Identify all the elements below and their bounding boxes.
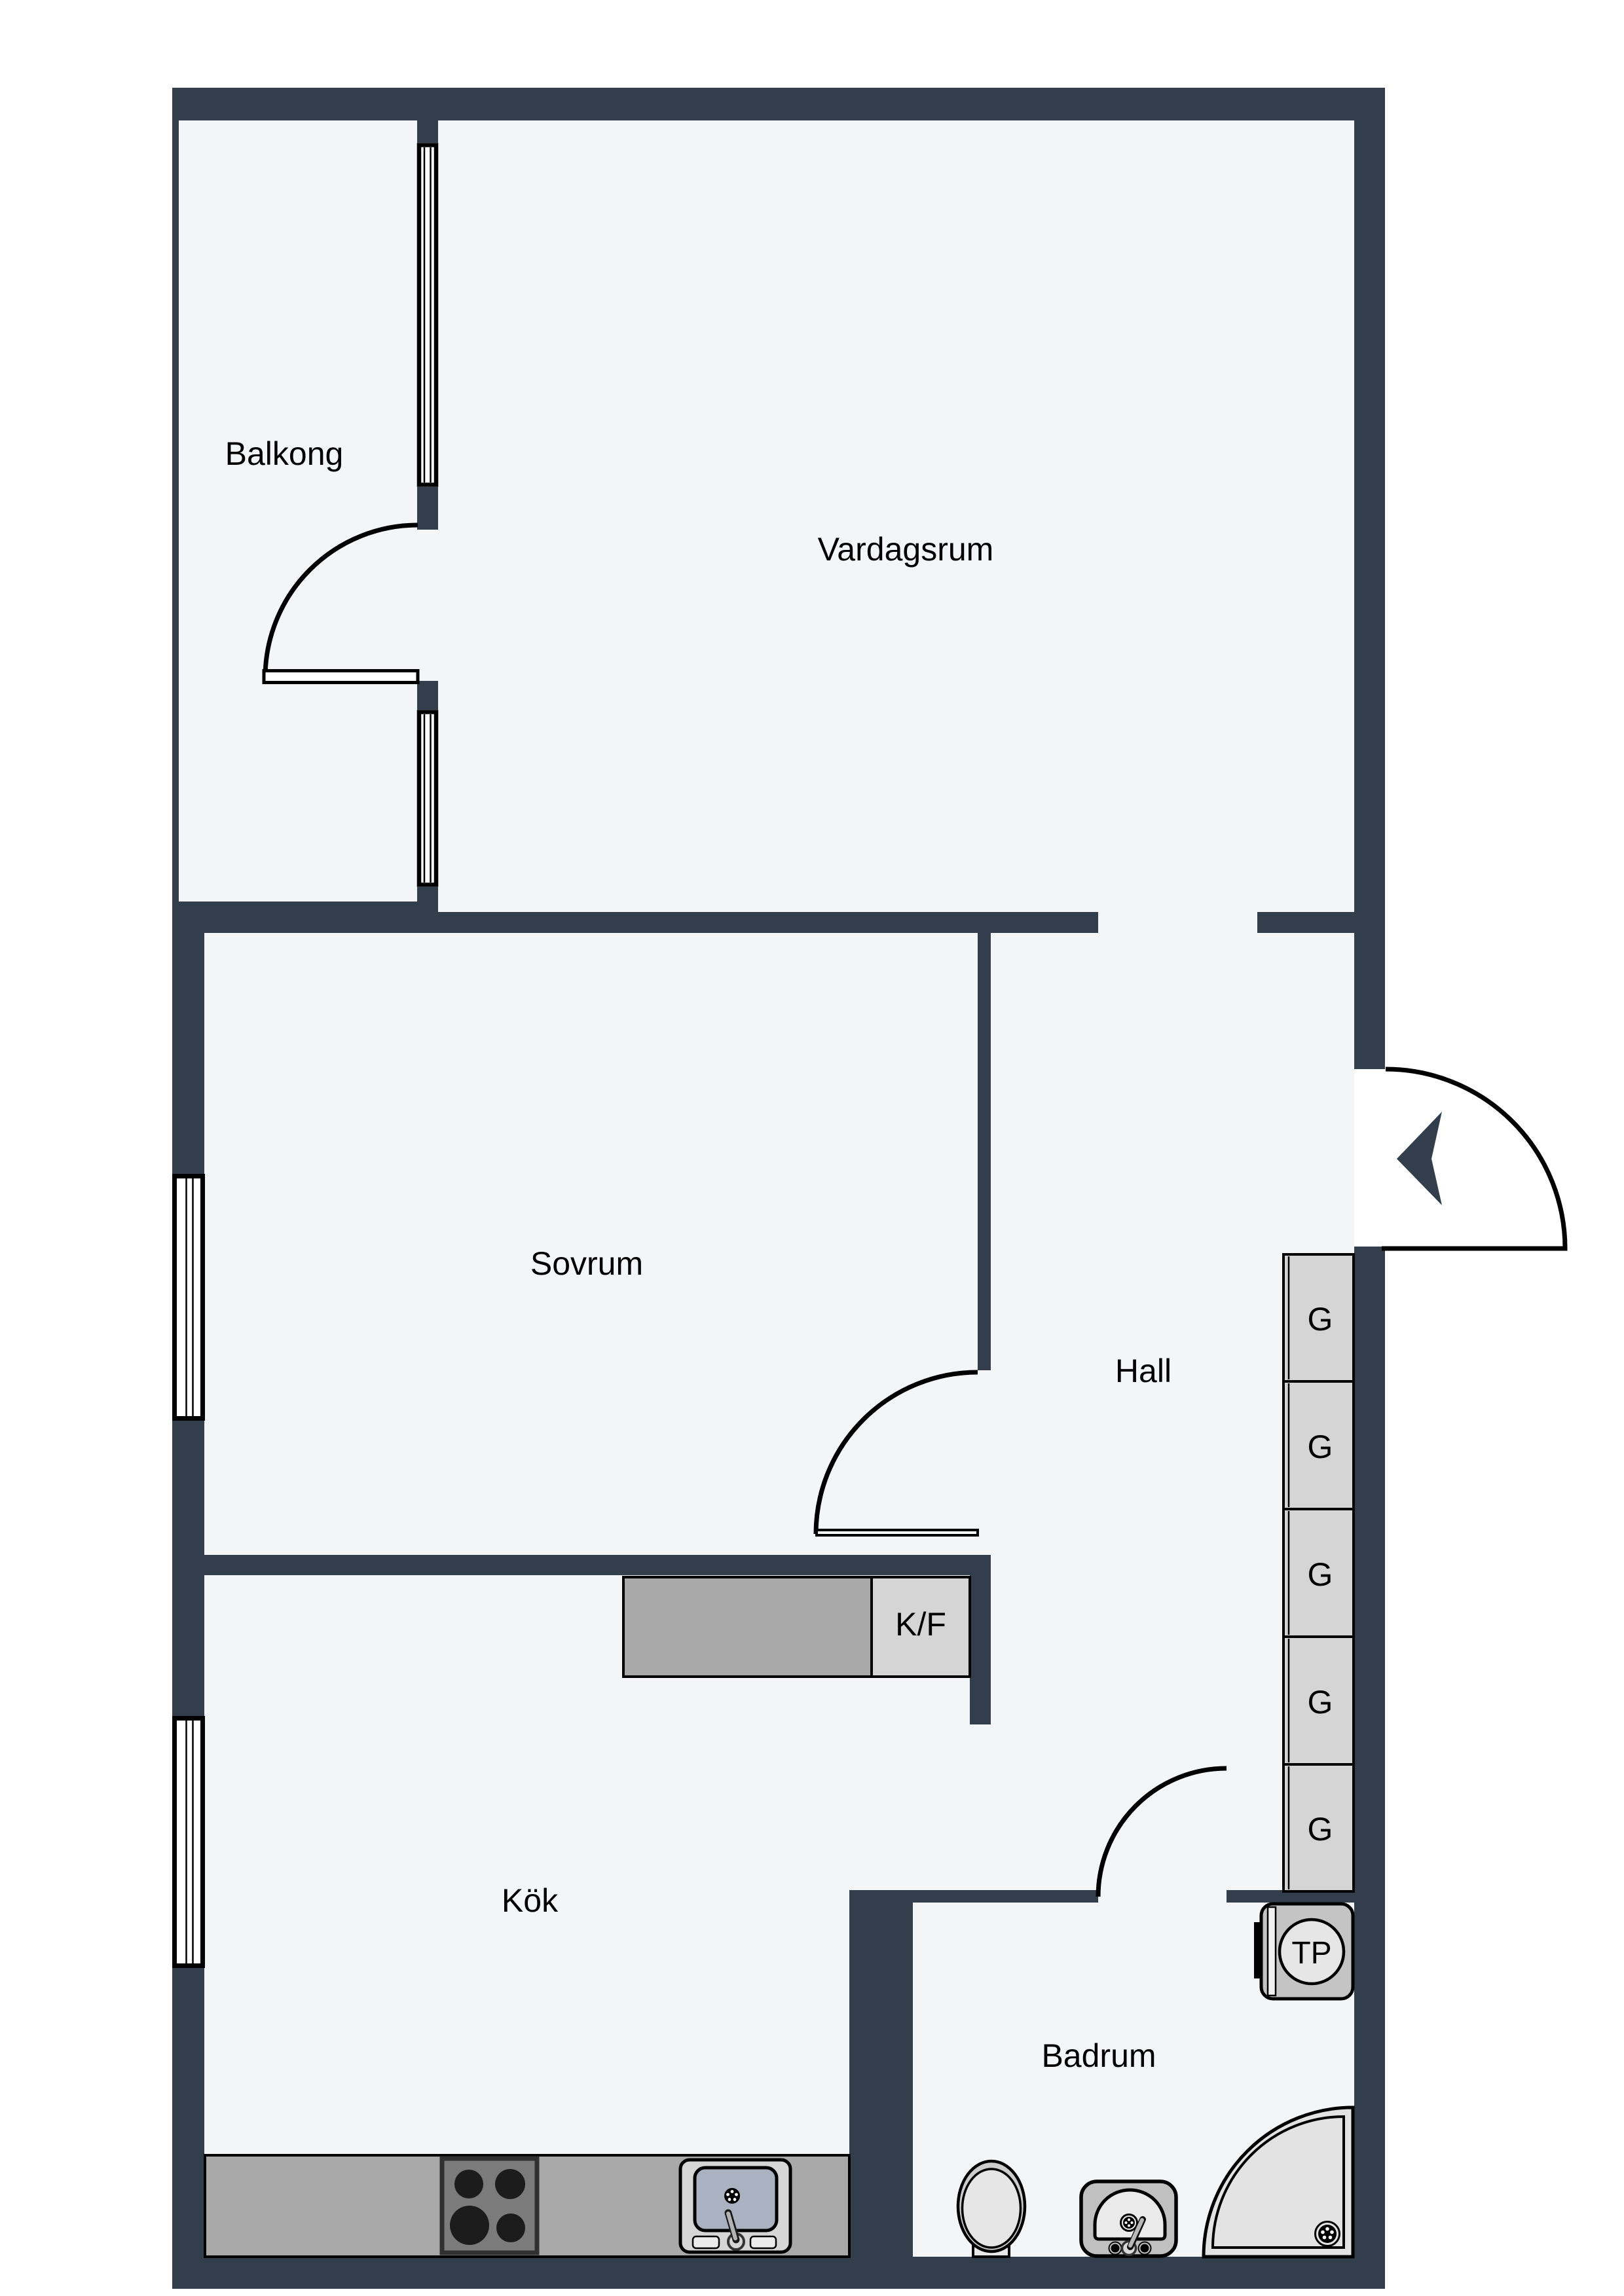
svg-text:Badrum: Badrum [1041, 2037, 1156, 2074]
svg-text:G: G [1308, 1811, 1333, 1848]
svg-text:Kök: Kök [502, 1882, 559, 1919]
svg-text:G: G [1308, 1429, 1333, 1465]
svg-text:Balkong: Balkong [225, 435, 344, 472]
svg-text:TP: TP [1291, 1936, 1331, 1971]
svg-text:G: G [1308, 1301, 1333, 1338]
svg-text:Sovrum: Sovrum [530, 1245, 643, 1282]
svg-text:K/F: K/F [895, 1606, 946, 1643]
svg-text:Vardagsrum: Vardagsrum [818, 531, 994, 568]
svg-text:G: G [1308, 1556, 1333, 1593]
svg-text:G: G [1308, 1684, 1333, 1721]
svg-text:Hall: Hall [1115, 1353, 1172, 1389]
